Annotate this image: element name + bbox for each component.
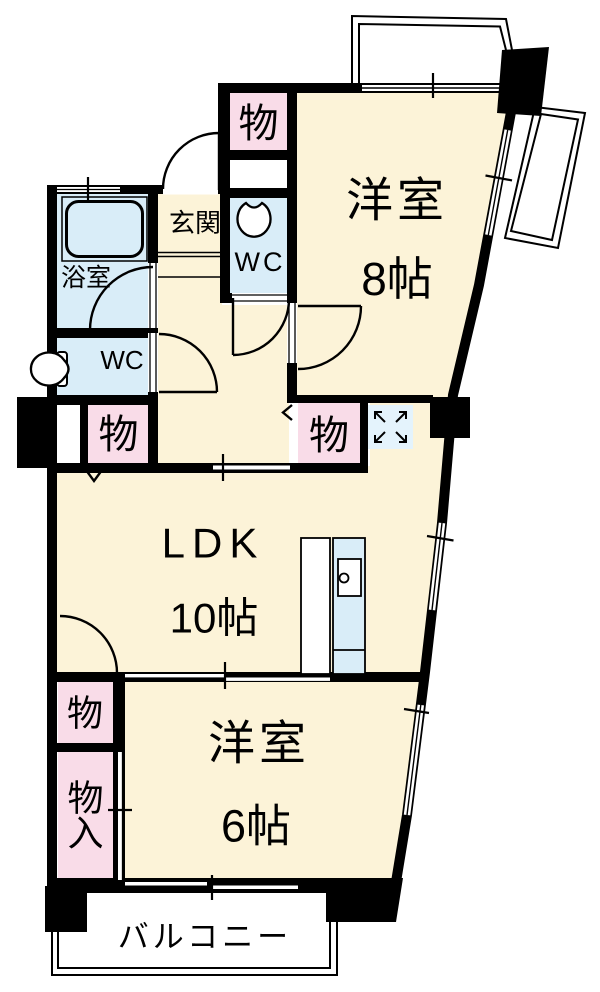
wall-hall-ldk (47, 463, 368, 473)
floor-plan-page: 物 玄関 WC 浴室 WC 物 物 洋室 8帖 LDK 10帖 物 物 入 洋室… (0, 0, 600, 992)
room-ldk-size: 10帖 (170, 595, 259, 642)
toilet-bowl (31, 352, 69, 385)
wall-left-outer (47, 185, 57, 893)
pillar-northeast (497, 47, 549, 116)
faucet-icon (340, 574, 349, 583)
toilet-icon (238, 203, 271, 237)
kitchen-unit (301, 538, 365, 674)
room-western6-size: 6帖 (221, 801, 291, 852)
bathroom-label: 浴室 (61, 264, 111, 292)
vent-icon (368, 405, 413, 449)
slider-storage-in (118, 752, 122, 880)
storage-mid-label: 物 (99, 413, 139, 457)
wall-storage-hall-right (360, 395, 368, 473)
balcony-label: バルコニー (118, 920, 292, 955)
shaft-top (230, 160, 287, 188)
floor-plan-drawing: 物 玄関 WC 浴室 WC 物 物 洋室 8帖 LDK 10帖 物 物 入 洋室… (0, 0, 600, 992)
bathroom-floor (55, 192, 150, 332)
entrance-label: 玄関 (169, 208, 221, 238)
room-ldk-label: LDK (162, 520, 265, 567)
pillar-east-mid (430, 397, 470, 438)
kitchen-counter (301, 538, 330, 674)
wall-shaft-wc-divider (222, 188, 295, 198)
toilet-left-label: WC (100, 345, 143, 375)
room-western8-size: 8帖 (361, 253, 433, 305)
storage-in-label-char2: 入 (67, 813, 103, 854)
room-western6-label: 洋室 (208, 717, 310, 770)
slider-ldk-room6-b (225, 678, 330, 681)
window-balcony-b (213, 886, 298, 890)
shaft-left (55, 400, 80, 465)
toilet-top-label: WC (235, 247, 286, 277)
window-balcony-a (125, 882, 207, 886)
storage-hall-label: 物 (309, 414, 349, 458)
slider-ldk-room6-a (125, 674, 225, 677)
wall-shaft-storage (80, 398, 88, 465)
wall-storage-divider-sw (47, 743, 125, 752)
wall-storage-shaft-divider (222, 150, 295, 160)
storage-top-label: 物 (239, 102, 279, 146)
pillar-west-mid (17, 397, 55, 468)
toilet-icon (31, 352, 69, 386)
storage-south-label: 物 (67, 693, 103, 734)
wall-wc-left-bottom (47, 395, 158, 405)
room-western8-label: 洋室 (346, 174, 448, 227)
opening-entrance (163, 185, 218, 195)
slider-hall-ldk (213, 466, 290, 470)
